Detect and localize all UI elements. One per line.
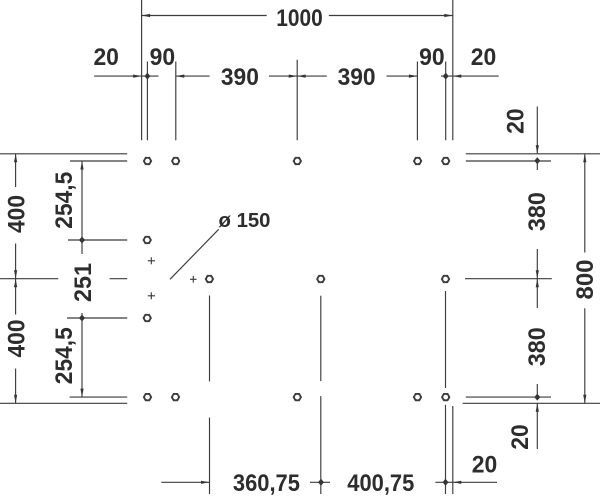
svg-text:380: 380 <box>524 192 551 231</box>
svg-text:800: 800 <box>572 260 599 300</box>
svg-text:400,75: 400,75 <box>347 470 414 497</box>
svg-text:390: 390 <box>221 64 259 91</box>
svg-text:254,5: 254,5 <box>51 172 78 229</box>
svg-text:90: 90 <box>419 44 445 71</box>
svg-text:20: 20 <box>472 452 498 479</box>
svg-text:20: 20 <box>471 44 497 71</box>
svg-text:20: 20 <box>93 44 119 71</box>
svg-text:1000: 1000 <box>276 5 323 32</box>
svg-text:254,5: 254,5 <box>51 327 78 384</box>
svg-text:20: 20 <box>503 108 530 134</box>
svg-text:90: 90 <box>150 44 176 71</box>
svg-text:360,75: 360,75 <box>233 470 300 497</box>
svg-text:ø 150: ø 150 <box>219 210 271 232</box>
svg-text:400: 400 <box>4 320 31 358</box>
svg-text:400: 400 <box>4 195 31 233</box>
svg-text:20: 20 <box>507 424 534 450</box>
svg-text:380: 380 <box>524 327 551 366</box>
svg-text:390: 390 <box>338 64 376 91</box>
svg-text:251: 251 <box>70 263 97 302</box>
